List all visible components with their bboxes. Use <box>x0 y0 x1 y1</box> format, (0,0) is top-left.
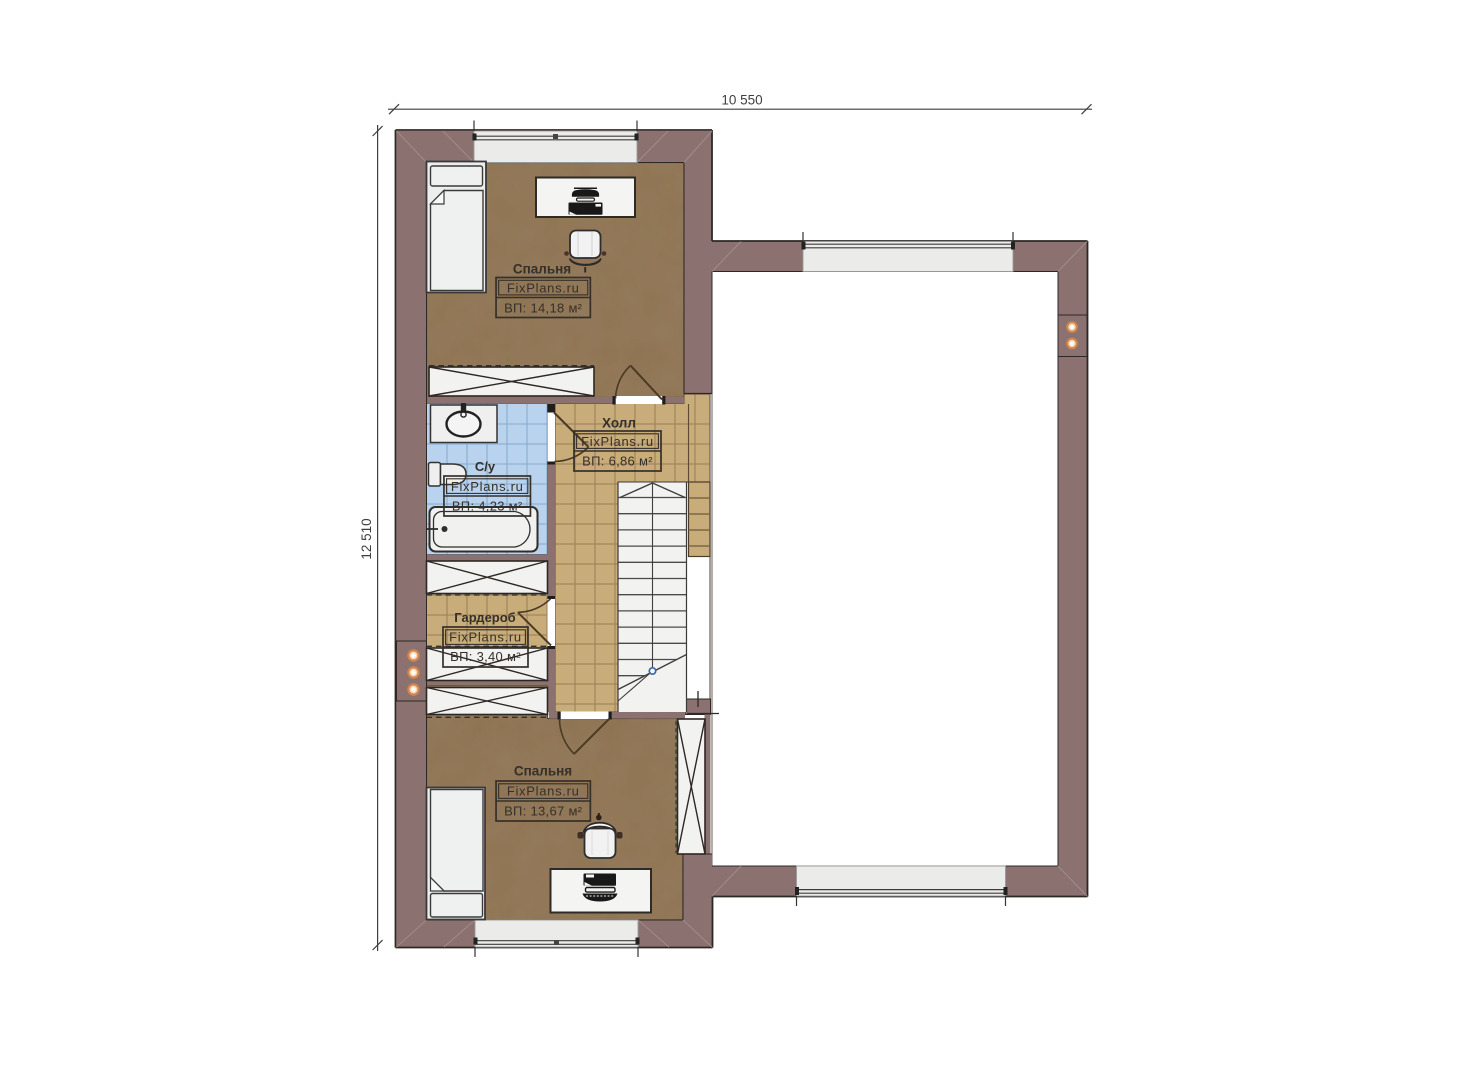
svg-text:FixPlans.ru: FixPlans.ru <box>449 630 522 645</box>
svg-text:FixPlans.ru: FixPlans.ru <box>507 281 580 296</box>
svg-text:10 550: 10 550 <box>721 93 762 108</box>
svg-text:Спальня: Спальня <box>514 764 572 779</box>
svg-text:ВП: 14,18 м²: ВП: 14,18 м² <box>504 301 583 316</box>
svg-text:С/у: С/у <box>475 459 496 474</box>
svg-text:ВП: 13,67 м²: ВП: 13,67 м² <box>504 804 583 819</box>
svg-text:Холл: Холл <box>602 416 636 431</box>
svg-text:12 510: 12 510 <box>359 518 374 559</box>
svg-text:ВП: 4,23 м²: ВП: 4,23 м² <box>452 499 523 514</box>
svg-text:Спальня: Спальня <box>513 262 571 277</box>
svg-text:FixPlans.ru: FixPlans.ru <box>507 784 580 799</box>
svg-text:ВП: 3,40 м²: ВП: 3,40 м² <box>450 649 521 664</box>
svg-text:FixPlans.ru: FixPlans.ru <box>451 479 524 494</box>
svg-text:FixPlans.ru: FixPlans.ru <box>581 434 654 449</box>
svg-text:ВП: 6,86 м²: ВП: 6,86 м² <box>582 454 653 469</box>
svg-text:Гардероб: Гардероб <box>454 610 515 625</box>
